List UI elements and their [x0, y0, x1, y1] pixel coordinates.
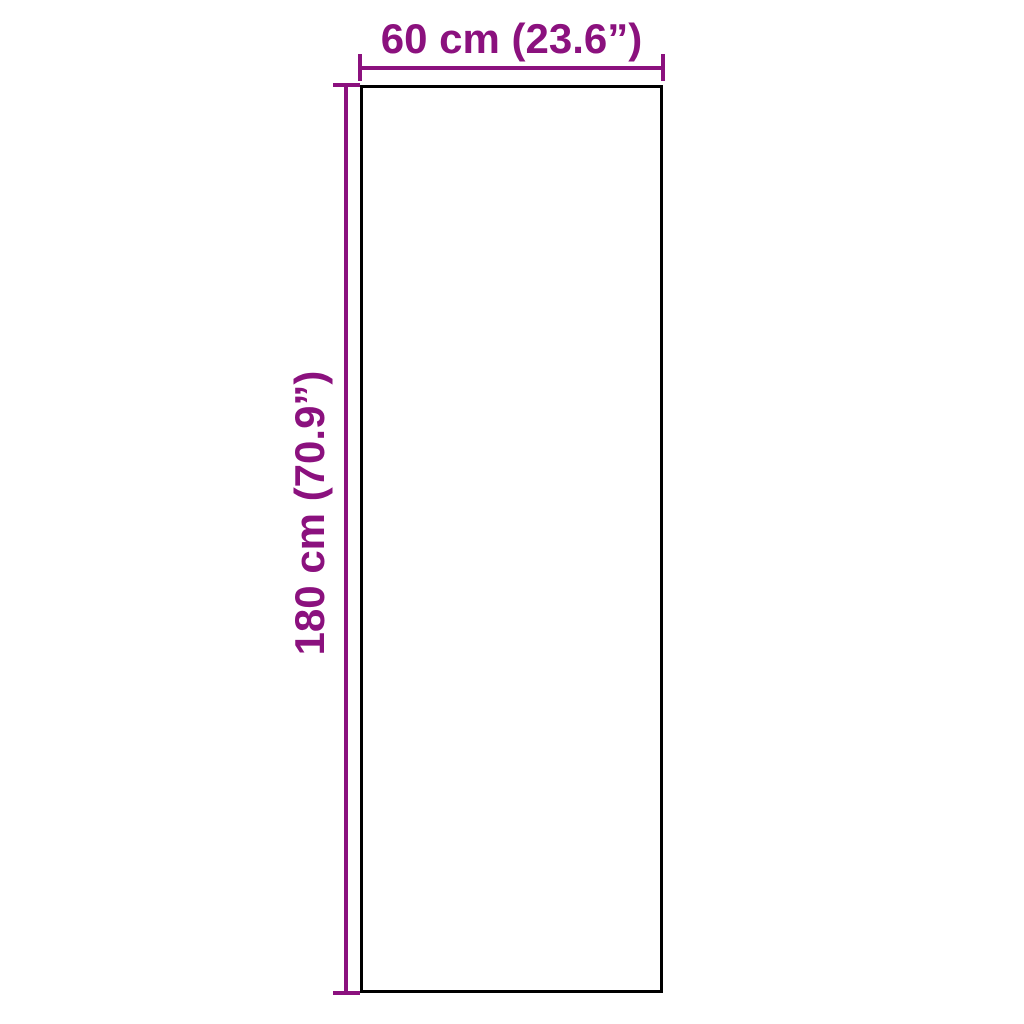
width-dimension-line [360, 66, 663, 70]
height-dimension-label: 180 cm (70.9”) [289, 371, 331, 656]
height-dimension-tick-bottom [333, 991, 360, 995]
product-outline-rectangle [360, 85, 663, 993]
height-dimension-line [344, 85, 348, 993]
height-dimension-tick-top [333, 83, 360, 87]
width-dimension-label: 60 cm (23.6”) [360, 18, 663, 60]
dimension-diagram: 60 cm (23.6”) 180 cm (70.9”) [0, 0, 1024, 1024]
